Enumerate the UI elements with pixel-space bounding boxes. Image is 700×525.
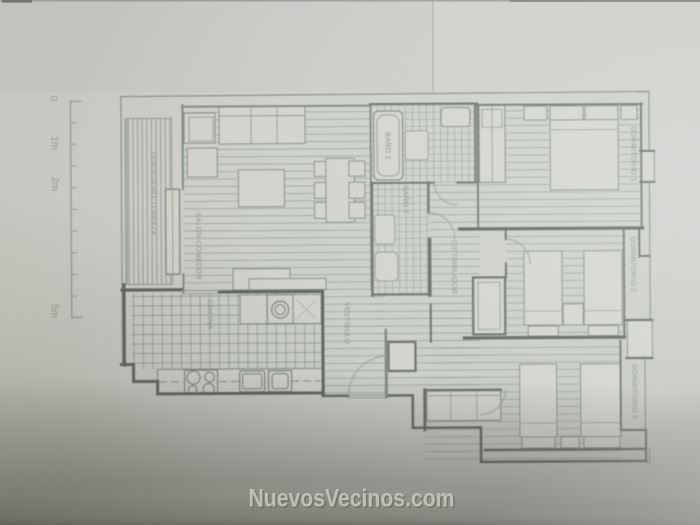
svg-text:NuevosVecinos.com: NuevosVecinos.com [249,485,455,513]
